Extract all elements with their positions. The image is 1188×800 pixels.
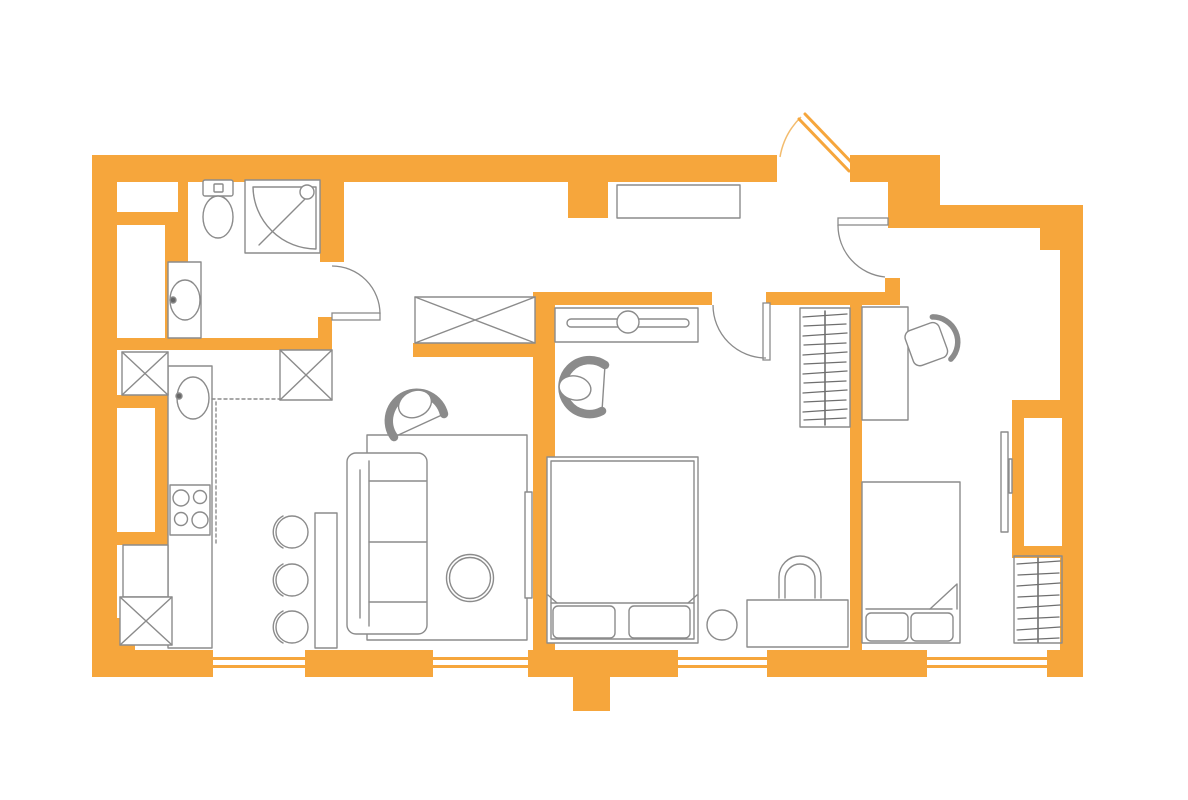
- dresser-with-mirror: [555, 308, 698, 342]
- wall-bedroom-top-right: [766, 292, 900, 305]
- washbasin: [168, 262, 201, 338]
- wall-left: [92, 155, 117, 677]
- tv-bracket: [1009, 459, 1012, 493]
- second-desk: [862, 307, 908, 420]
- bedroom-armchair: [557, 360, 605, 414]
- window-second-bedroom: [927, 650, 1047, 677]
- living-closet-crossed: [415, 297, 535, 343]
- wall-bottom-bump: [573, 677, 610, 711]
- shaft-box-2: [280, 350, 332, 400]
- window-living: [433, 650, 528, 677]
- wall-top-left: [92, 155, 777, 182]
- wall-left-niche-right: [155, 398, 168, 545]
- tv-living: [525, 492, 532, 598]
- bedroom-stool: [707, 610, 737, 640]
- base-cabinet: [123, 545, 168, 597]
- tv-second-bedroom: [1001, 432, 1008, 532]
- second-bedroom-door: [838, 218, 888, 277]
- wall-bath-bottom: [117, 338, 332, 350]
- wall-bath-right: [320, 155, 344, 262]
- window-kitchen: [213, 650, 305, 677]
- wall-top-notch: [568, 182, 608, 218]
- stove: [170, 485, 210, 535]
- entrance-door: [780, 114, 855, 171]
- wall-corner-notch: [1040, 228, 1062, 250]
- floor-plan: [0, 0, 1188, 800]
- wall-entry-right: [850, 155, 940, 182]
- living-armchair: [389, 385, 444, 437]
- shaft-box-3: [120, 597, 172, 645]
- double-bed: [547, 457, 698, 643]
- wall-left-niche-bottom: [110, 532, 168, 545]
- wall-bath-niche-side: [178, 182, 188, 212]
- wall-divider-bedrooms: [850, 305, 862, 650]
- arch-chair: [779, 556, 821, 598]
- coffee-table: [447, 555, 494, 602]
- wall-bath-door-jamb: [318, 317, 332, 350]
- wall-living-top: [413, 343, 538, 357]
- floor-plan-page: [0, 0, 1188, 800]
- furniture-layer: [120, 180, 1062, 648]
- bathroom-door: [332, 266, 380, 320]
- corner-shower: [245, 180, 320, 253]
- bar-stools: [273, 516, 308, 643]
- window-bedroom: [678, 650, 767, 677]
- right-niche-inner: [1024, 418, 1062, 546]
- wall-top-right: [917, 205, 1083, 228]
- console-shelf: [617, 185, 740, 218]
- bedroom-door: [713, 303, 770, 360]
- kitchen-sink: [176, 377, 209, 419]
- toilet: [203, 180, 233, 238]
- bedroom-desk: [747, 600, 848, 647]
- office-chair: [901, 311, 964, 371]
- sofa: [347, 453, 427, 634]
- shaft-box-1: [122, 352, 168, 395]
- wall-bedroom-top-left: [538, 292, 712, 305]
- bar-table: [315, 513, 337, 648]
- wall-bedroom-door-stub: [885, 278, 900, 305]
- single-bed: [862, 482, 960, 643]
